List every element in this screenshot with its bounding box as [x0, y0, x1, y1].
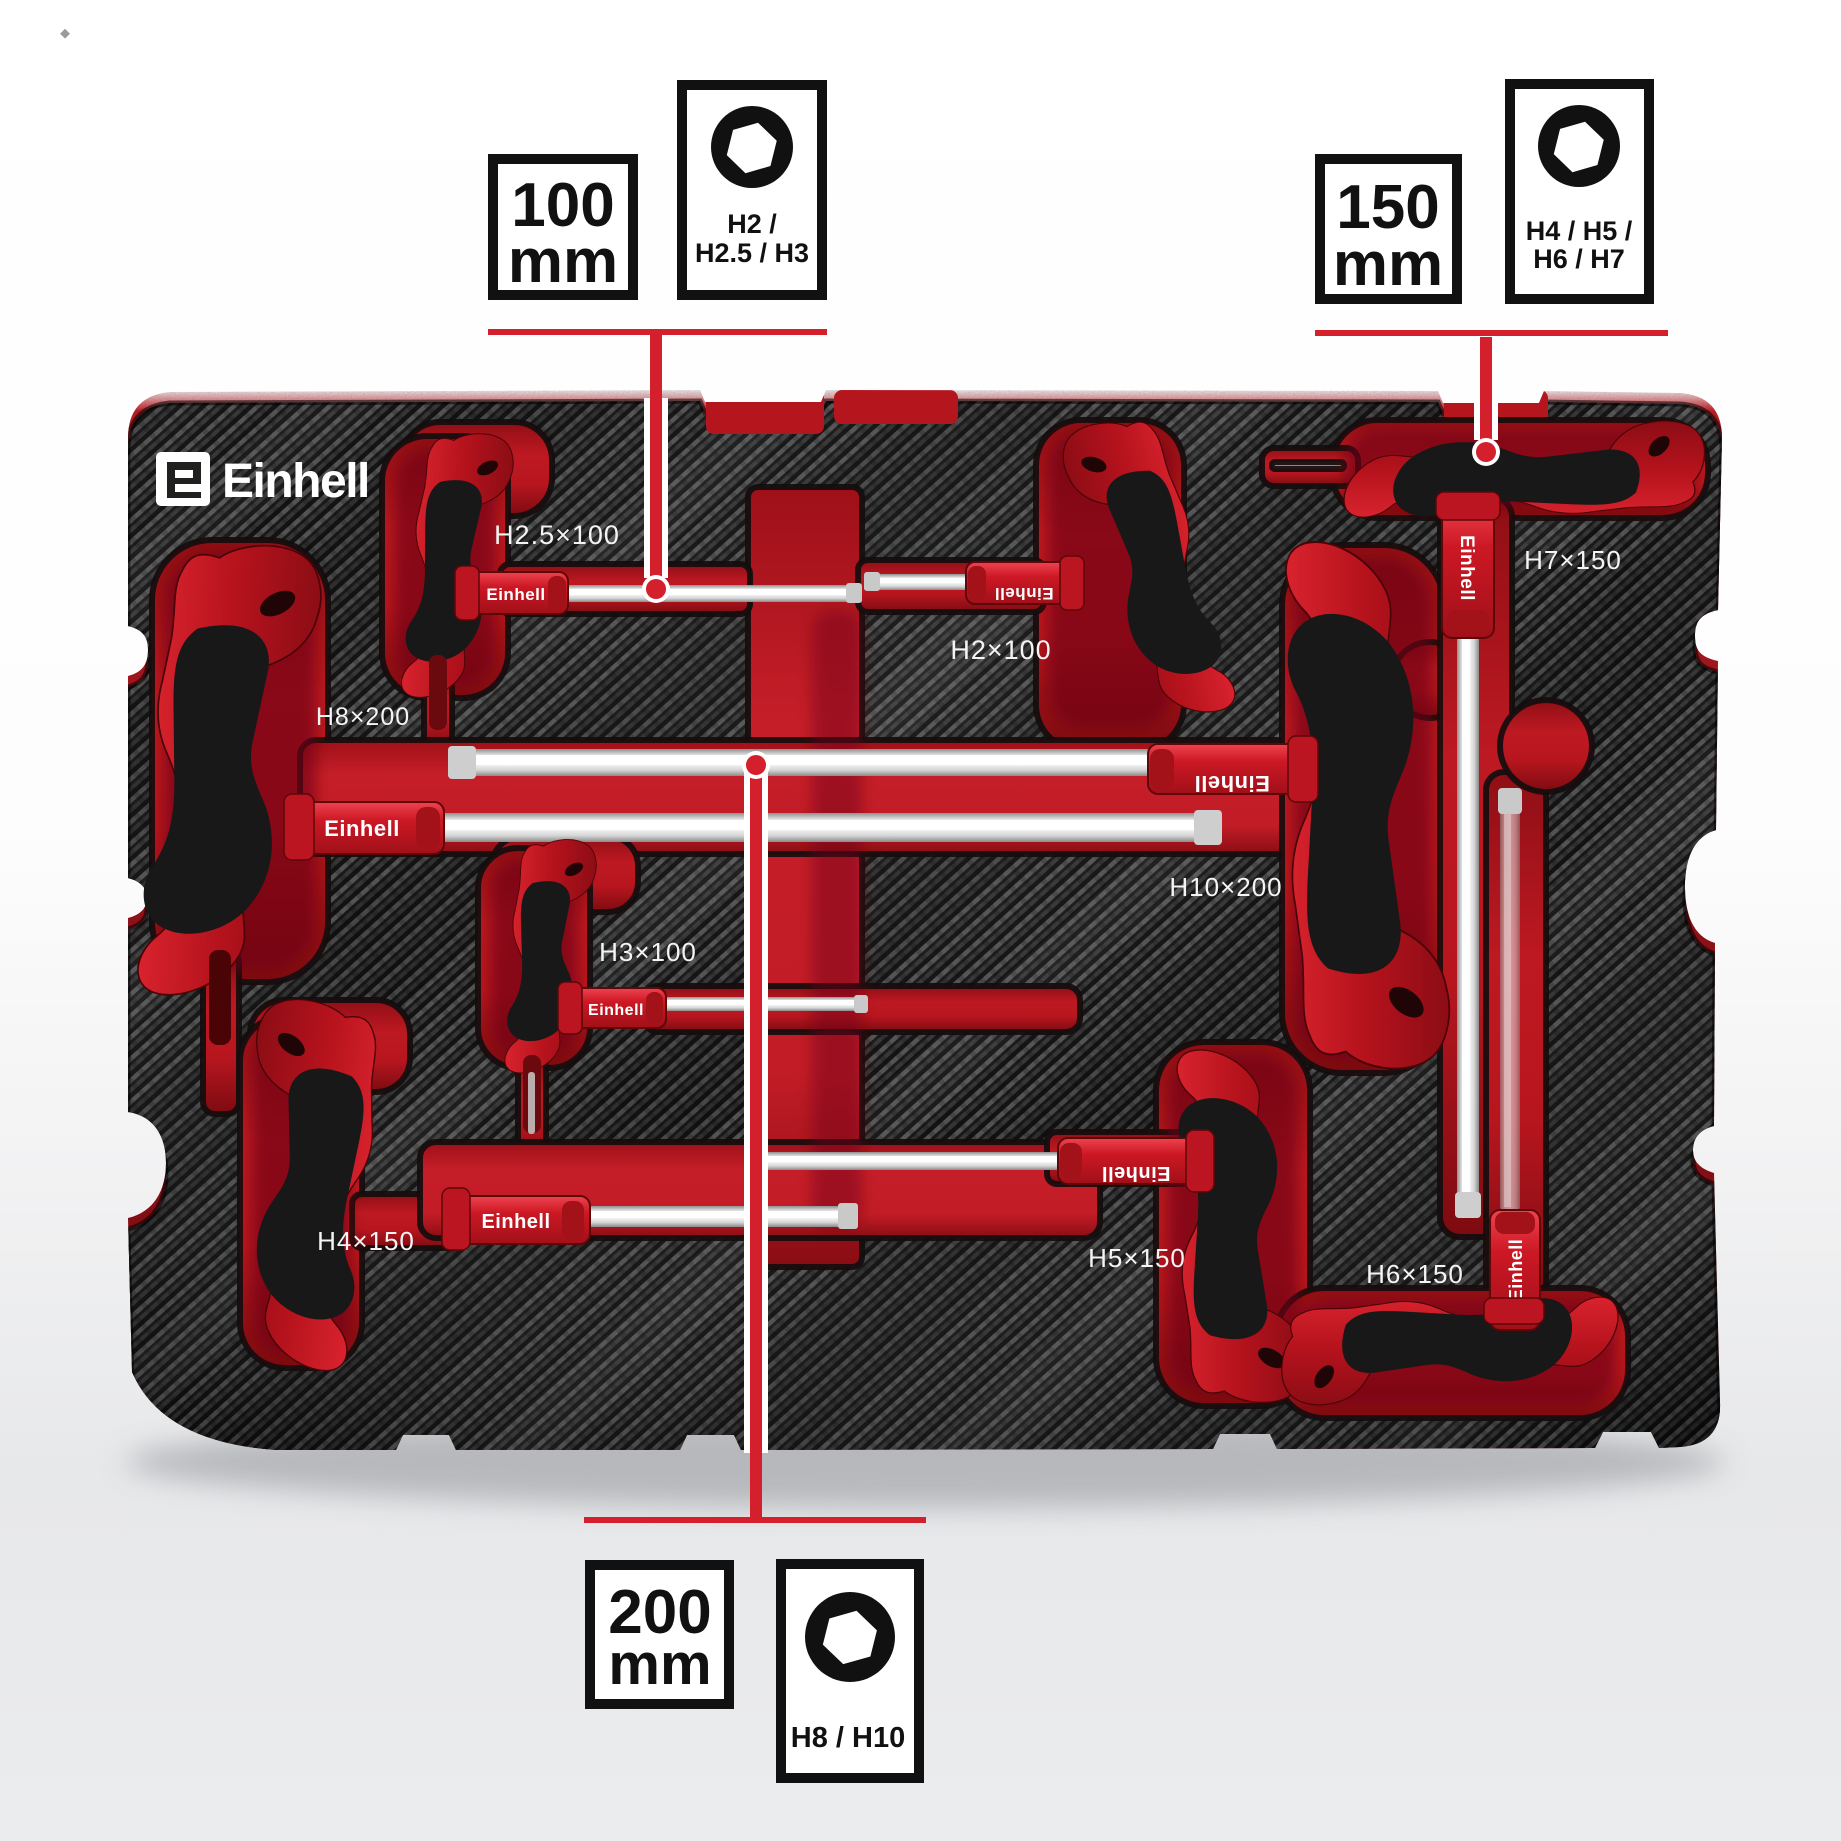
svg-text:Einhell: Einhell: [588, 1002, 644, 1019]
svg-text:H2.5 / H3: H2.5 / H3: [695, 238, 809, 268]
svg-text:H4×150: H4×150: [317, 1226, 415, 1256]
svg-text:mm: mm: [1333, 230, 1443, 299]
svg-text:H3×100: H3×100: [599, 937, 697, 967]
svg-text:H2.5×100: H2.5×100: [494, 520, 620, 550]
svg-text:H5×150: H5×150: [1088, 1243, 1186, 1273]
svg-text:mm: mm: [508, 227, 618, 296]
svg-text:Einhell: Einhell: [1456, 535, 1477, 601]
svg-text:Einhell: Einhell: [486, 585, 545, 604]
svg-text:Einhell: Einhell: [222, 455, 369, 508]
svg-text:Einhell: Einhell: [324, 816, 400, 841]
svg-text:H8 / H10: H8 / H10: [791, 1722, 905, 1754]
svg-text:H7×150: H7×150: [1524, 545, 1622, 575]
svg-text:H2×100: H2×100: [950, 635, 1051, 665]
svg-text:Einhell: Einhell: [1101, 1162, 1170, 1184]
svg-text:H6×150: H6×150: [1366, 1259, 1464, 1289]
svg-text:Einhell: Einhell: [1506, 1239, 1526, 1302]
svg-text:H8×200: H8×200: [316, 703, 410, 731]
svg-text:H6 / H7: H6 / H7: [1533, 244, 1625, 274]
svg-text:mm: mm: [608, 1632, 711, 1697]
svg-text:H10×200: H10×200: [1169, 872, 1282, 902]
svg-text:H2 /: H2 /: [727, 209, 777, 239]
svg-text:H4 / H5 /: H4 / H5 /: [1526, 216, 1633, 246]
svg-text:Einhell: Einhell: [994, 584, 1053, 603]
svg-text:Einhell: Einhell: [1194, 771, 1270, 796]
svg-text:Einhell: Einhell: [481, 1211, 550, 1233]
